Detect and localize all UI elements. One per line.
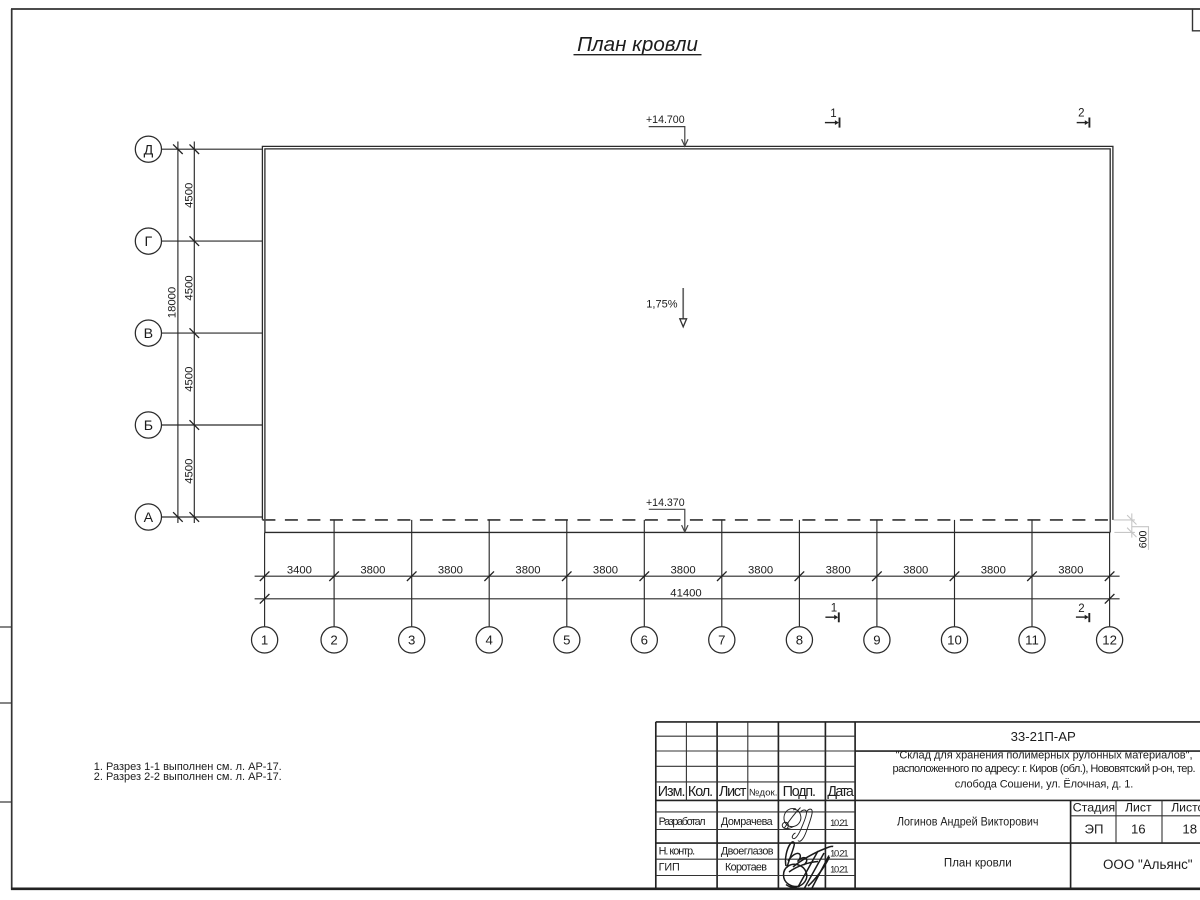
svg-text:Лист: Лист	[719, 784, 747, 800]
svg-text:11: 11	[1025, 633, 1039, 648]
svg-text:Разработал: Разработал	[659, 816, 706, 828]
svg-text:2. Разрез 2-2 выполнен см. л.: 2. Разрез 2-2 выполнен см. л. АР-17.	[94, 771, 282, 783]
svg-text:6: 6	[641, 633, 648, 648]
svg-text:Двоеглазов: Двоеглазов	[721, 845, 774, 857]
svg-text:Домрачева: Домрачева	[721, 816, 773, 828]
svg-text:Лист: Лист	[1125, 801, 1152, 815]
svg-text:3800: 3800	[593, 565, 618, 577]
svg-text:12: 12	[1102, 633, 1117, 648]
svg-text:4: 4	[486, 633, 493, 648]
svg-text:41400: 41400	[670, 587, 701, 599]
svg-text:План кровли: План кровли	[944, 858, 1012, 870]
svg-text:18000: 18000	[166, 287, 178, 318]
svg-text:Кол.: Кол.	[688, 784, 713, 800]
svg-text:1: 1	[831, 602, 837, 614]
svg-text:В: В	[144, 326, 153, 342]
svg-text:18: 18	[1182, 822, 1197, 837]
svg-text:10.21: 10.21	[830, 865, 848, 875]
svg-text:2: 2	[330, 633, 337, 648]
svg-text:+14.370: +14.370	[646, 497, 685, 509]
svg-text:Коротаев: Коротаев	[725, 862, 767, 874]
svg-text:3800: 3800	[360, 565, 385, 577]
svg-text:10.21: 10.21	[830, 848, 848, 858]
svg-text:План кровли: План кровли	[577, 33, 698, 56]
svg-text:1,75%: 1,75%	[646, 299, 677, 311]
svg-text:600: 600	[1137, 530, 1149, 548]
svg-text:33-21П-АР: 33-21П-АР	[1011, 729, 1076, 744]
svg-text:16: 16	[1131, 822, 1146, 837]
svg-text:Г: Г	[145, 234, 153, 250]
svg-text:ЭП: ЭП	[1085, 822, 1104, 837]
svg-text:3800: 3800	[515, 565, 540, 577]
svg-text:4500: 4500	[183, 459, 195, 484]
svg-text:Дата: Дата	[827, 784, 854, 800]
svg-text:10: 10	[947, 633, 962, 648]
svg-text:3800: 3800	[1058, 565, 1083, 577]
svg-text:Изм.: Изм.	[658, 784, 686, 800]
svg-text:+14.700: +14.700	[646, 114, 685, 126]
svg-text:4500: 4500	[183, 367, 195, 392]
svg-text:4500: 4500	[183, 183, 195, 208]
svg-text:3800: 3800	[748, 565, 773, 577]
svg-text:Б: Б	[144, 418, 153, 434]
svg-text:3800: 3800	[903, 565, 928, 577]
svg-text:Логинов Андрей Викторович: Логинов Андрей Викторович	[897, 816, 1039, 828]
svg-text:3: 3	[408, 633, 415, 648]
svg-text:3800: 3800	[671, 565, 696, 577]
svg-text:1: 1	[830, 108, 836, 120]
svg-text:3800: 3800	[438, 565, 463, 577]
svg-text:3400: 3400	[287, 565, 312, 577]
svg-text:Стадия: Стадия	[1073, 801, 1116, 815]
svg-text:слобода Сошени, ул. Ёлочная, д: слобода Сошени, ул. Ёлочная, д. 1.	[955, 779, 1134, 791]
svg-text:4500: 4500	[183, 275, 195, 300]
svg-text:8: 8	[796, 633, 803, 648]
svg-text:3800: 3800	[981, 565, 1006, 577]
svg-text:ГИП: ГИП	[659, 862, 680, 874]
svg-text:2: 2	[1078, 108, 1084, 120]
svg-text:7: 7	[718, 633, 725, 648]
svg-text:2: 2	[1078, 603, 1084, 615]
svg-text:расположенного по адресу: г. К: расположенного по адресу: г. Киров (обл.…	[893, 763, 1196, 775]
svg-text:А: А	[144, 510, 154, 526]
svg-text:Листов: Листов	[1171, 801, 1200, 815]
svg-text:"Склад для хранения полимерных: "Склад для хранения полимерных рулонных …	[896, 750, 1193, 762]
svg-text:9: 9	[873, 633, 880, 648]
svg-text:Подп.: Подп.	[783, 784, 816, 800]
svg-text:3800: 3800	[826, 565, 851, 577]
svg-text:5: 5	[563, 633, 570, 648]
svg-text:Д: Д	[144, 142, 154, 158]
svg-text:1: 1	[261, 633, 268, 648]
svg-text:№док.: №док.	[749, 787, 778, 798]
svg-text:ООО "Альянс": ООО "Альянс"	[1103, 857, 1193, 872]
svg-text:Н. контр.: Н. контр.	[659, 845, 696, 857]
svg-text:10.21: 10.21	[830, 818, 848, 828]
